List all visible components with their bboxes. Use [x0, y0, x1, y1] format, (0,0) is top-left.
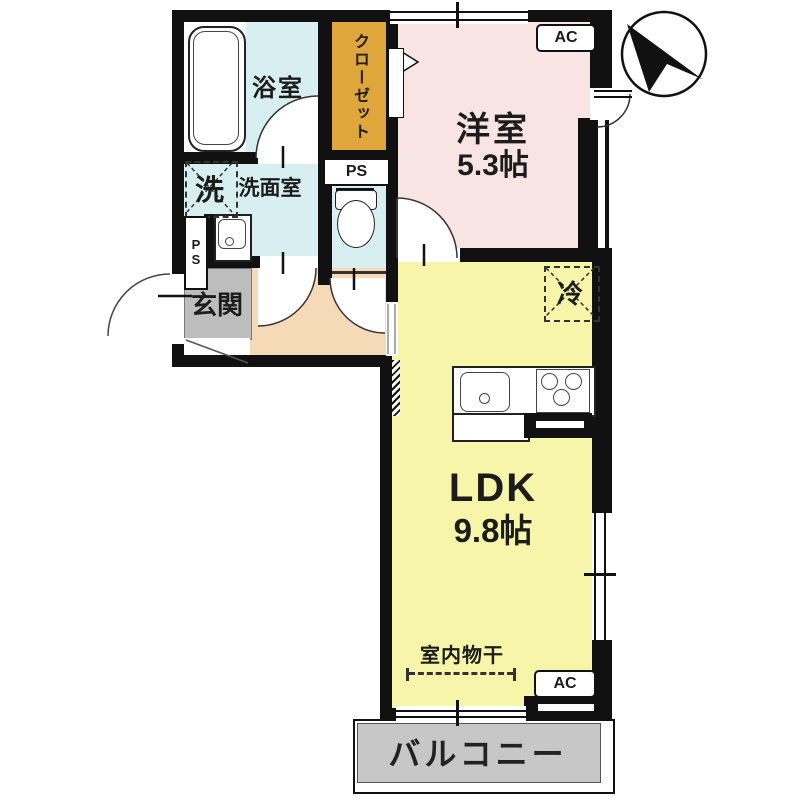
stove-burner-icon	[553, 389, 570, 406]
fridge-label: 冷	[544, 270, 596, 314]
wall-segment	[172, 355, 392, 367]
opening-line	[394, 304, 396, 354]
wall-segment	[172, 10, 184, 274]
ac-label: AC	[554, 29, 577, 47]
floor-plan: PS P S AC AC 浴室 クローゼット 洗面室 洗 玄関 洋室 5.3帖 …	[0, 0, 800, 800]
wall-segment	[460, 248, 612, 262]
toilet-bowl	[337, 200, 375, 248]
wall-segment	[318, 10, 332, 285]
ac-label: AC	[553, 675, 576, 693]
stove-burner-icon	[565, 373, 582, 390]
indoor-drying-label: 室内物干	[404, 640, 520, 666]
washer-label: 洗	[185, 166, 234, 210]
bathroom-label: 浴室	[238, 70, 318, 100]
entrance-door-swing	[108, 274, 170, 336]
window-line	[396, 716, 526, 718]
wall-stripe	[538, 704, 594, 711]
window-balcony	[396, 706, 526, 722]
compass-circle	[622, 12, 706, 96]
bedroom-size-label: 5.3帖	[398, 144, 588, 180]
window-tick	[584, 573, 616, 576]
window-line	[390, 19, 528, 21]
kitchen-cabinet	[452, 413, 530, 442]
ps-label-p: P	[192, 238, 201, 253]
toilet-door-line	[332, 271, 386, 274]
wall-segment	[380, 355, 392, 720]
bedroom-side-door-gap	[590, 88, 614, 120]
ldk-size-label: 9.8帖	[398, 508, 588, 548]
window-tick	[456, 2, 459, 28]
window-line	[594, 513, 596, 640]
ps-label-s: S	[192, 253, 201, 268]
north-arrow-icon	[627, 24, 702, 92]
door-leaf	[594, 90, 632, 92]
kitchen-sink	[460, 372, 510, 412]
opening-line	[387, 304, 389, 354]
stove-burner-icon	[541, 373, 558, 390]
ps-badge-toilet: PS	[323, 158, 390, 186]
entrance-label: 玄関	[184, 287, 250, 319]
wall-segment	[172, 10, 390, 22]
drying-rack-icon	[406, 668, 516, 681]
kitchen-drain-icon	[479, 393, 490, 404]
door-leaf	[594, 96, 632, 98]
closet-label: クローゼット	[332, 24, 386, 150]
balcony-label: バルコニー	[357, 723, 599, 781]
window-line	[390, 11, 528, 13]
ac-badge-ldk: AC	[534, 670, 596, 698]
ac-badge-bedroom: AC	[536, 24, 596, 52]
ps-badge-washroom: P S	[184, 216, 208, 290]
washroom-label: 洗面室	[226, 174, 314, 200]
window-line	[396, 710, 526, 712]
ps-label: PS	[346, 163, 367, 181]
bathtub-inner	[193, 31, 239, 145]
window-line	[604, 513, 606, 640]
kitchen-counter-stripe	[536, 421, 584, 428]
washbasin-drain-icon	[225, 237, 234, 246]
wall-hatch	[392, 360, 400, 416]
wall-segment	[605, 118, 609, 250]
